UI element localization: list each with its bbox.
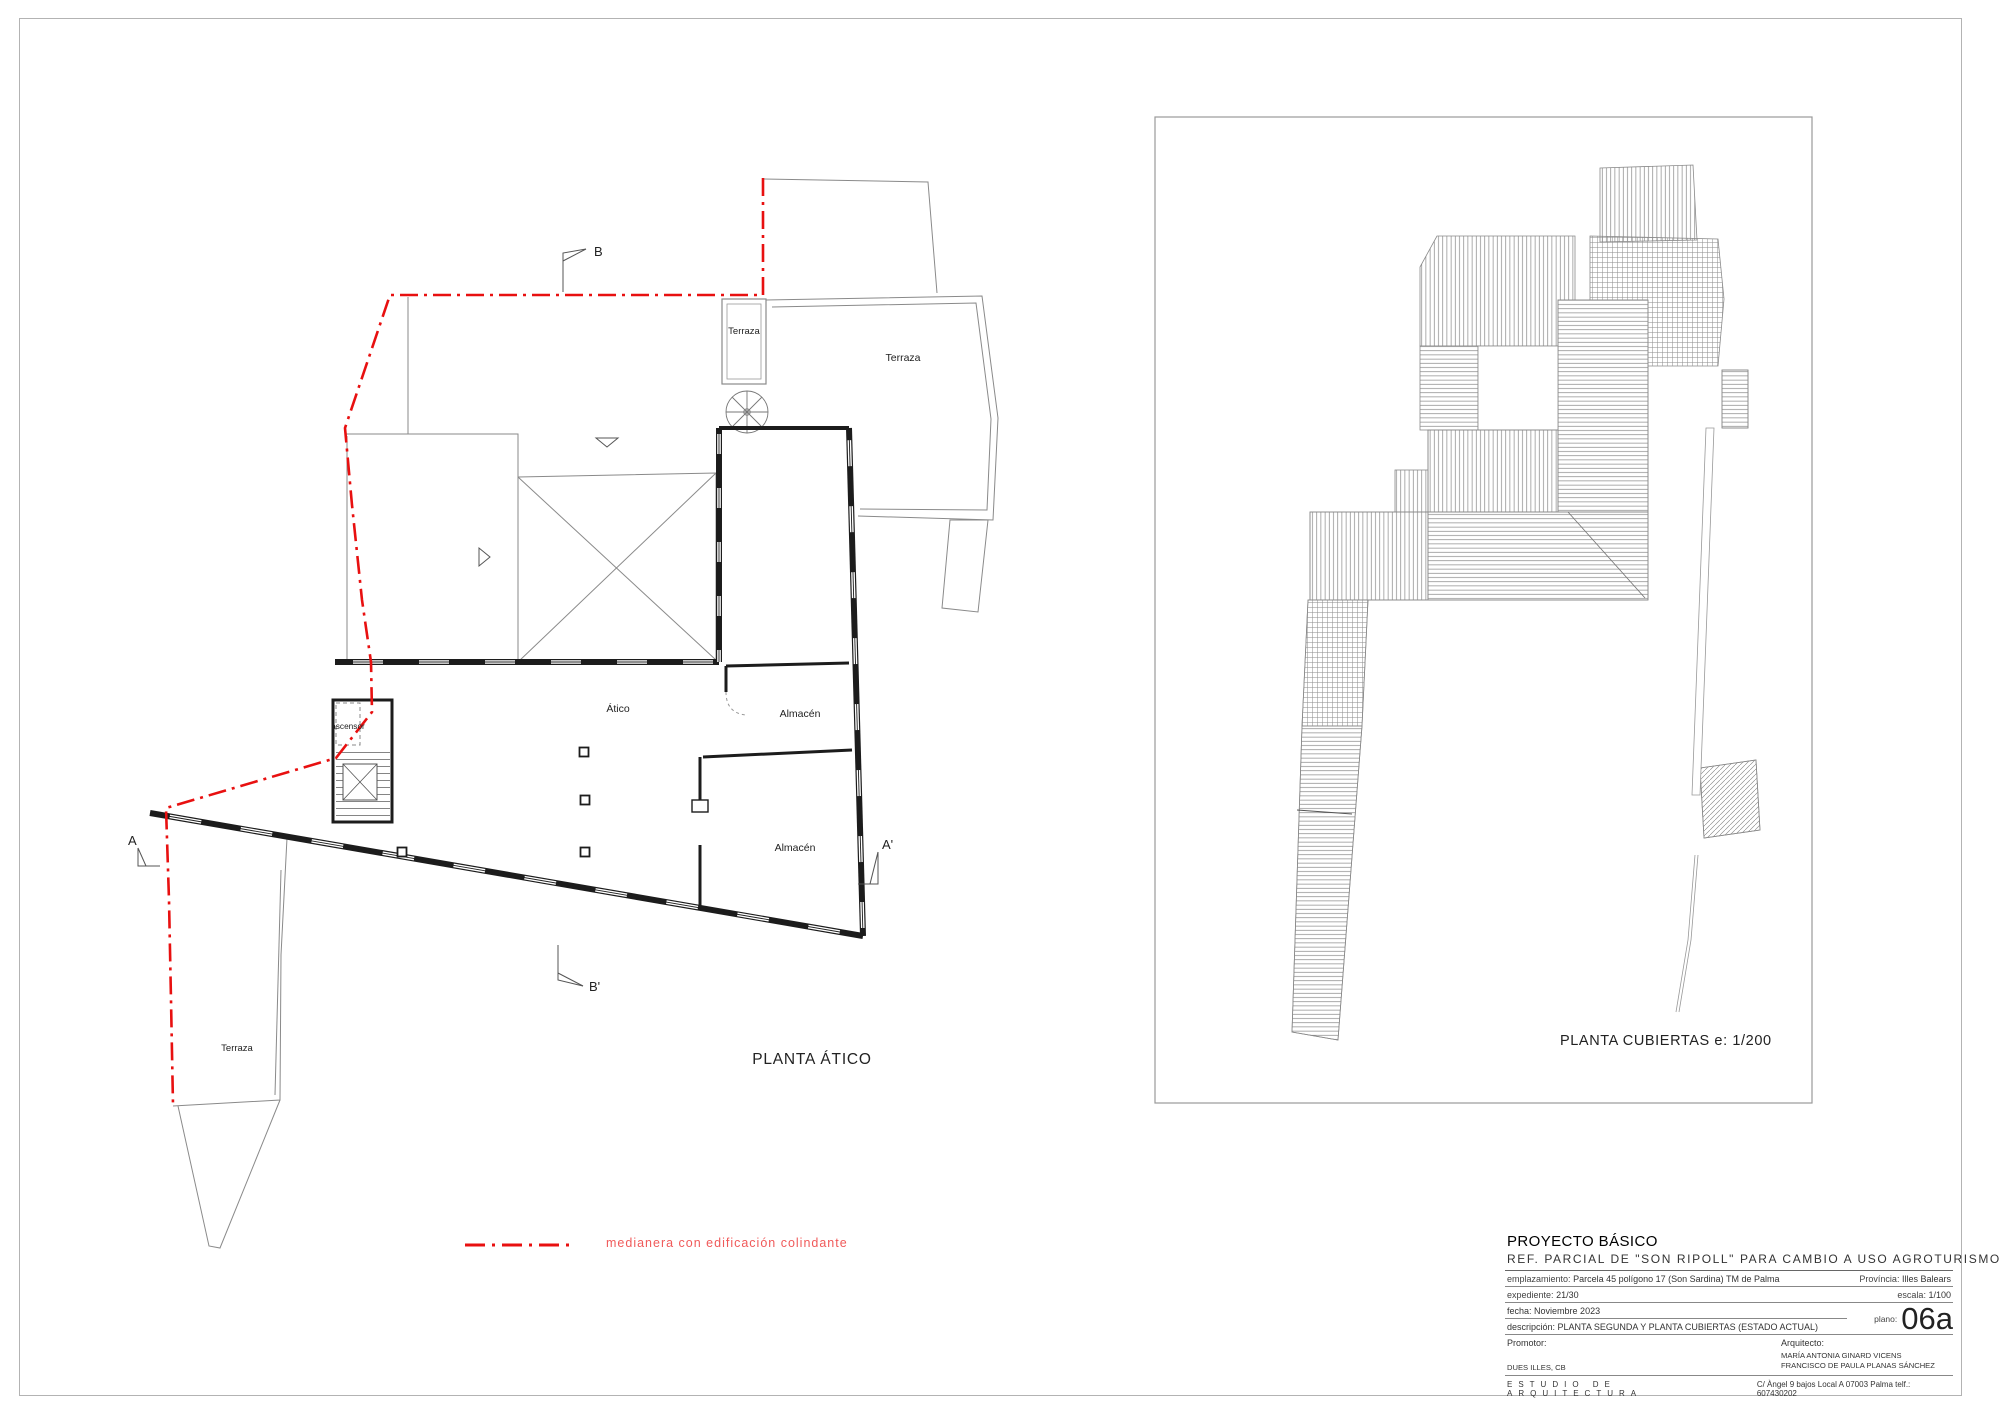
section-label-b: B [594, 244, 603, 259]
descripcion-label: descripción: [1507, 1322, 1555, 1332]
arquitecto-label: Arquitecto: [1781, 1338, 1951, 1348]
fecha-value: Noviembre 2023 [1534, 1306, 1600, 1316]
roof-hip [1428, 512, 1648, 600]
title-block: PROYECTO BÁSICO REF. PARCIAL DE "SON RIP… [1505, 1232, 1953, 1400]
wall-right [849, 428, 863, 936]
row-roles: Promotor: Arquitecto: [1505, 1335, 1953, 1349]
label-terraza-top: Terraza [728, 326, 760, 337]
row-names: DUES ILLES, CB MARÍA ANTONIA GINARD VICE… [1505, 1349, 1953, 1376]
escala-value: 1/100 [1928, 1290, 1951, 1300]
estudio-address: C/ Àngel 9 bajos Local A 07003 Palma tel… [1757, 1380, 1951, 1398]
label-atico: Ático [606, 702, 630, 715]
arquitecto-name-1: MARÍA ANTONIA GINARD VICENS [1781, 1351, 1902, 1360]
plano-number: 06a [1901, 1303, 1953, 1334]
project-ref: REF. PARCIAL DE "SON RIPOLL" PARA CAMBIO… [1505, 1252, 1953, 1271]
section-label-a: A [128, 833, 137, 848]
wall-bottom [150, 813, 863, 936]
skylight-cross-square [518, 473, 716, 662]
marker-B [563, 249, 586, 292]
descripcion-row: descripción: PLANTA SEGUNDA Y PLANTA CUB… [1505, 1319, 1847, 1334]
label-almacen-lower: Almacén [775, 842, 816, 854]
slope-arrows [479, 438, 618, 566]
descripcion-value: PLANTA SEGUNDA Y PLANTA CUBIERTAS (ESTAD… [1558, 1322, 1818, 1332]
estudio-name: ESTUDIO DE ARQUITECTURA [1507, 1380, 1757, 1398]
label-terraza-right: Terraza [885, 352, 920, 364]
provincia-label: Província: [1859, 1274, 1899, 1284]
row-emplazamiento: emplazamiento: Parcela 45 polígono 17 (S… [1505, 1271, 1953, 1287]
emplazamiento-label: emplazamiento: [1507, 1274, 1571, 1284]
row-fecha-descripcion: fecha: Noviembre 2023 descripción: PLANT… [1505, 1303, 1953, 1335]
stairwell-block [333, 700, 392, 822]
promotor-value: DUES ILLES, CB [1507, 1363, 1566, 1372]
cubiertas-plan-title: PLANTA CUBIERTAS e: 1/200 [1560, 1033, 1772, 1049]
marker-A [138, 848, 160, 866]
section-label-a-prime: A' [882, 837, 893, 852]
drawing-canvas: B B' A A' Terraza Terraza Ático Almacén … [0, 0, 2000, 1413]
roof-patio-opening [1478, 346, 1558, 430]
escala-label: escala: [1897, 1290, 1926, 1300]
label-terraza-bottom: Terraza [221, 1043, 253, 1054]
arquitecto-name-2: FRANCISCO DE PAULA PLANAS SÁNCHEZ [1781, 1361, 1935, 1370]
cubiertas-roof-plan: PLANTA CUBIERTAS e: 1/200 [1155, 117, 1812, 1103]
stair-cross-box [343, 764, 377, 800]
atico-plan-title: PLANTA ÁTICO [752, 1051, 872, 1068]
fecha-row: fecha: Noviembre 2023 [1505, 1303, 1847, 1319]
red-boundary-line [166, 178, 763, 1105]
legend-label: medianera con edificación colindante [606, 1236, 848, 1250]
legend: medianera con edificación colindante [462, 1236, 848, 1250]
atico-floor-plan: B B' A A' Terraza Terraza Ático Almacén … [128, 178, 998, 1248]
plano-label: plano: [1874, 1314, 1897, 1324]
plano-cell: plano: 06a [1847, 1303, 1953, 1334]
expediente-value: 21/30 [1556, 1290, 1579, 1300]
provincia-value: Illes Balears [1902, 1274, 1951, 1284]
almacen-partitions [692, 663, 852, 906]
emplazamiento-value: Parcela 45 polígono 17 (Son Sardina) TM … [1573, 1274, 1779, 1284]
promotor-label: Promotor: [1507, 1338, 1547, 1348]
row-expediente: expediente: 21/30 escala: 1/100 [1505, 1287, 1953, 1303]
top-terraza-and-spiral-stair [722, 299, 768, 433]
project-type: PROYECTO BÁSICO [1505, 1232, 1953, 1252]
label-almacen-upper: Almacén [780, 708, 821, 720]
exterior-walls [150, 428, 863, 936]
section-label-b-prime: B' [589, 979, 600, 994]
roof-chimney [1600, 165, 1697, 242]
fecha-label: fecha: [1507, 1306, 1532, 1316]
columns [398, 748, 590, 857]
marker-B-prime [558, 945, 583, 986]
neighbour-outlines [173, 179, 998, 1248]
label-ascensor: ascensor [331, 721, 365, 731]
expediente-label: expediente: [1507, 1290, 1554, 1300]
row-footer: ESTUDIO DE ARQUITECTURA C/ Àngel 9 bajos… [1505, 1376, 1953, 1400]
